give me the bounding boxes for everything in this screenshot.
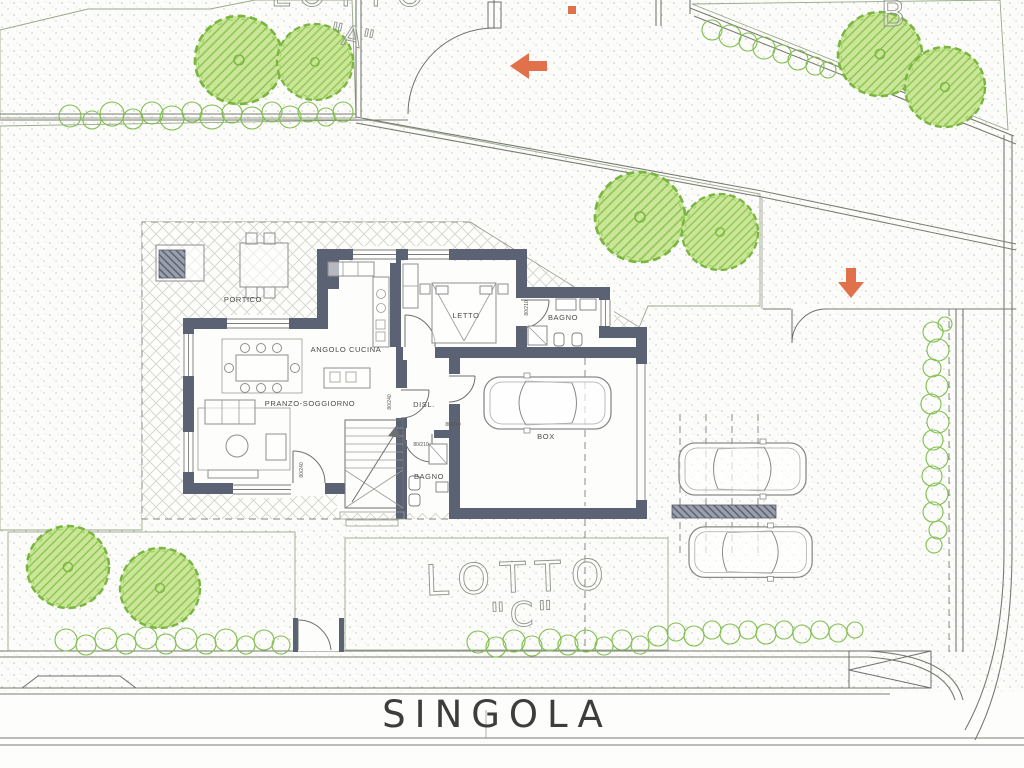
kitchen-counter: [328, 262, 374, 276]
window: [597, 300, 614, 326]
dining-chair: [225, 364, 234, 373]
bidet: [572, 333, 582, 346]
window: [353, 246, 396, 263]
armchair: [266, 434, 286, 460]
room-label-bagno-top: BAGNO: [548, 313, 578, 322]
lot-b-letter: B: [881, 0, 906, 35]
sink: [556, 299, 576, 310]
window: [180, 432, 197, 472]
room-label-disl: DISL.: [413, 400, 435, 409]
dining-chair: [257, 344, 266, 353]
pillow: [480, 286, 492, 294]
kitchen-peninsula: [324, 368, 370, 388]
room-label-angolo-cucina: ANGOLO CUCINA: [311, 345, 382, 354]
room-label-letto: LETTO: [452, 311, 479, 320]
parking-wall-strip: [672, 505, 776, 518]
barbecue-grill: [159, 250, 185, 278]
tree: [27, 526, 109, 608]
street-name: SINGOLA: [382, 693, 612, 736]
pillow: [436, 286, 448, 294]
dining-chair: [241, 384, 250, 393]
room-label-bagno-bottom: BAGNO: [414, 472, 444, 481]
outdoor-chair: [264, 287, 275, 298]
outdoor-chair: [264, 233, 275, 244]
door-dim: 80/210: [524, 300, 530, 316]
parked-car: [689, 523, 812, 581]
tree: [120, 548, 200, 628]
nightstand: [498, 284, 508, 294]
sink: [436, 482, 448, 492]
door-dim: 80/210: [413, 442, 429, 448]
door-dim: 80/240: [387, 394, 393, 410]
window: [233, 481, 291, 498]
outdoor-chair: [246, 233, 257, 244]
window: [408, 246, 449, 263]
washer: [580, 299, 596, 310]
tree: [595, 172, 685, 262]
bidet: [409, 494, 420, 506]
nightstand: [420, 284, 430, 294]
room-label-pranzo-soggiorno: PRANZO-SOGGIORNO: [265, 399, 355, 408]
window: [180, 334, 197, 376]
dining-chair: [273, 344, 282, 353]
room-label-portico: PORTICO: [224, 295, 262, 304]
dining-chair: [291, 364, 300, 373]
sofa: [205, 400, 255, 424]
door-dim: 80/210: [445, 422, 461, 428]
site-plan-page: LOTTO "A" B LOTTO "C" SINGOLA PORTICO AN…: [0, 0, 1024, 768]
dining-chair: [257, 384, 266, 393]
toilet: [554, 333, 564, 346]
dining-chair: [241, 344, 250, 353]
site-plan-drawing: LOTTO "A" B LOTTO "C" SINGOLA PORTICO AN…: [0, 0, 1024, 768]
tree: [195, 16, 283, 104]
door-dim: 80/240: [299, 462, 305, 478]
car-in-garage: [484, 373, 611, 433]
tree: [905, 47, 985, 127]
lot-c-letter: "C": [489, 594, 557, 636]
kitchen-counter-side: [373, 277, 389, 347]
parked-car: [679, 439, 806, 499]
garage-door: [634, 364, 649, 500]
window: [227, 315, 289, 332]
lot-a-label: LOTTO: [271, 0, 433, 15]
tv-bench: [208, 470, 258, 478]
north-marker-square: [568, 6, 576, 14]
dining-chair: [273, 384, 282, 393]
coffee-table: [226, 435, 248, 457]
room-label-box: BOX: [537, 432, 555, 441]
dining-table: [236, 355, 288, 381]
outdoor-table: [240, 243, 288, 287]
tree: [682, 194, 758, 270]
garden-gate-bottom: [293, 618, 344, 652]
